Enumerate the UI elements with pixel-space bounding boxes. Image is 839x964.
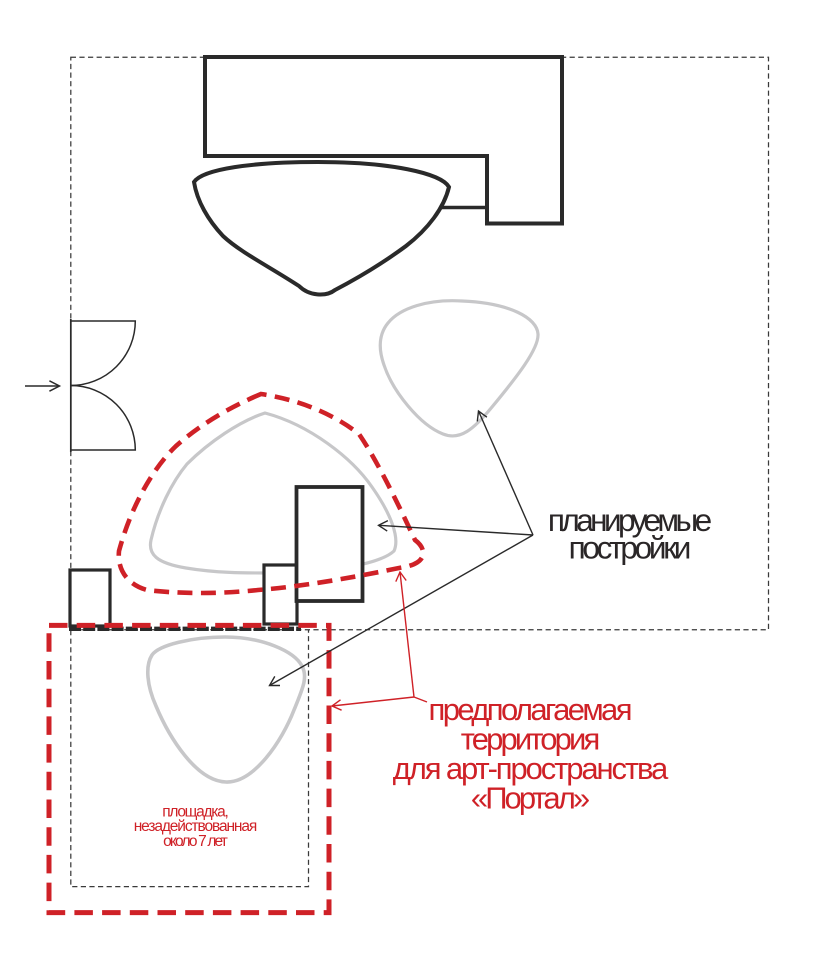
svg-text:около 7 лет: около 7 лет — [163, 833, 228, 850]
svg-text:«Портал»: «Портал» — [471, 780, 590, 815]
svg-text:постройки: постройки — [569, 530, 692, 566]
